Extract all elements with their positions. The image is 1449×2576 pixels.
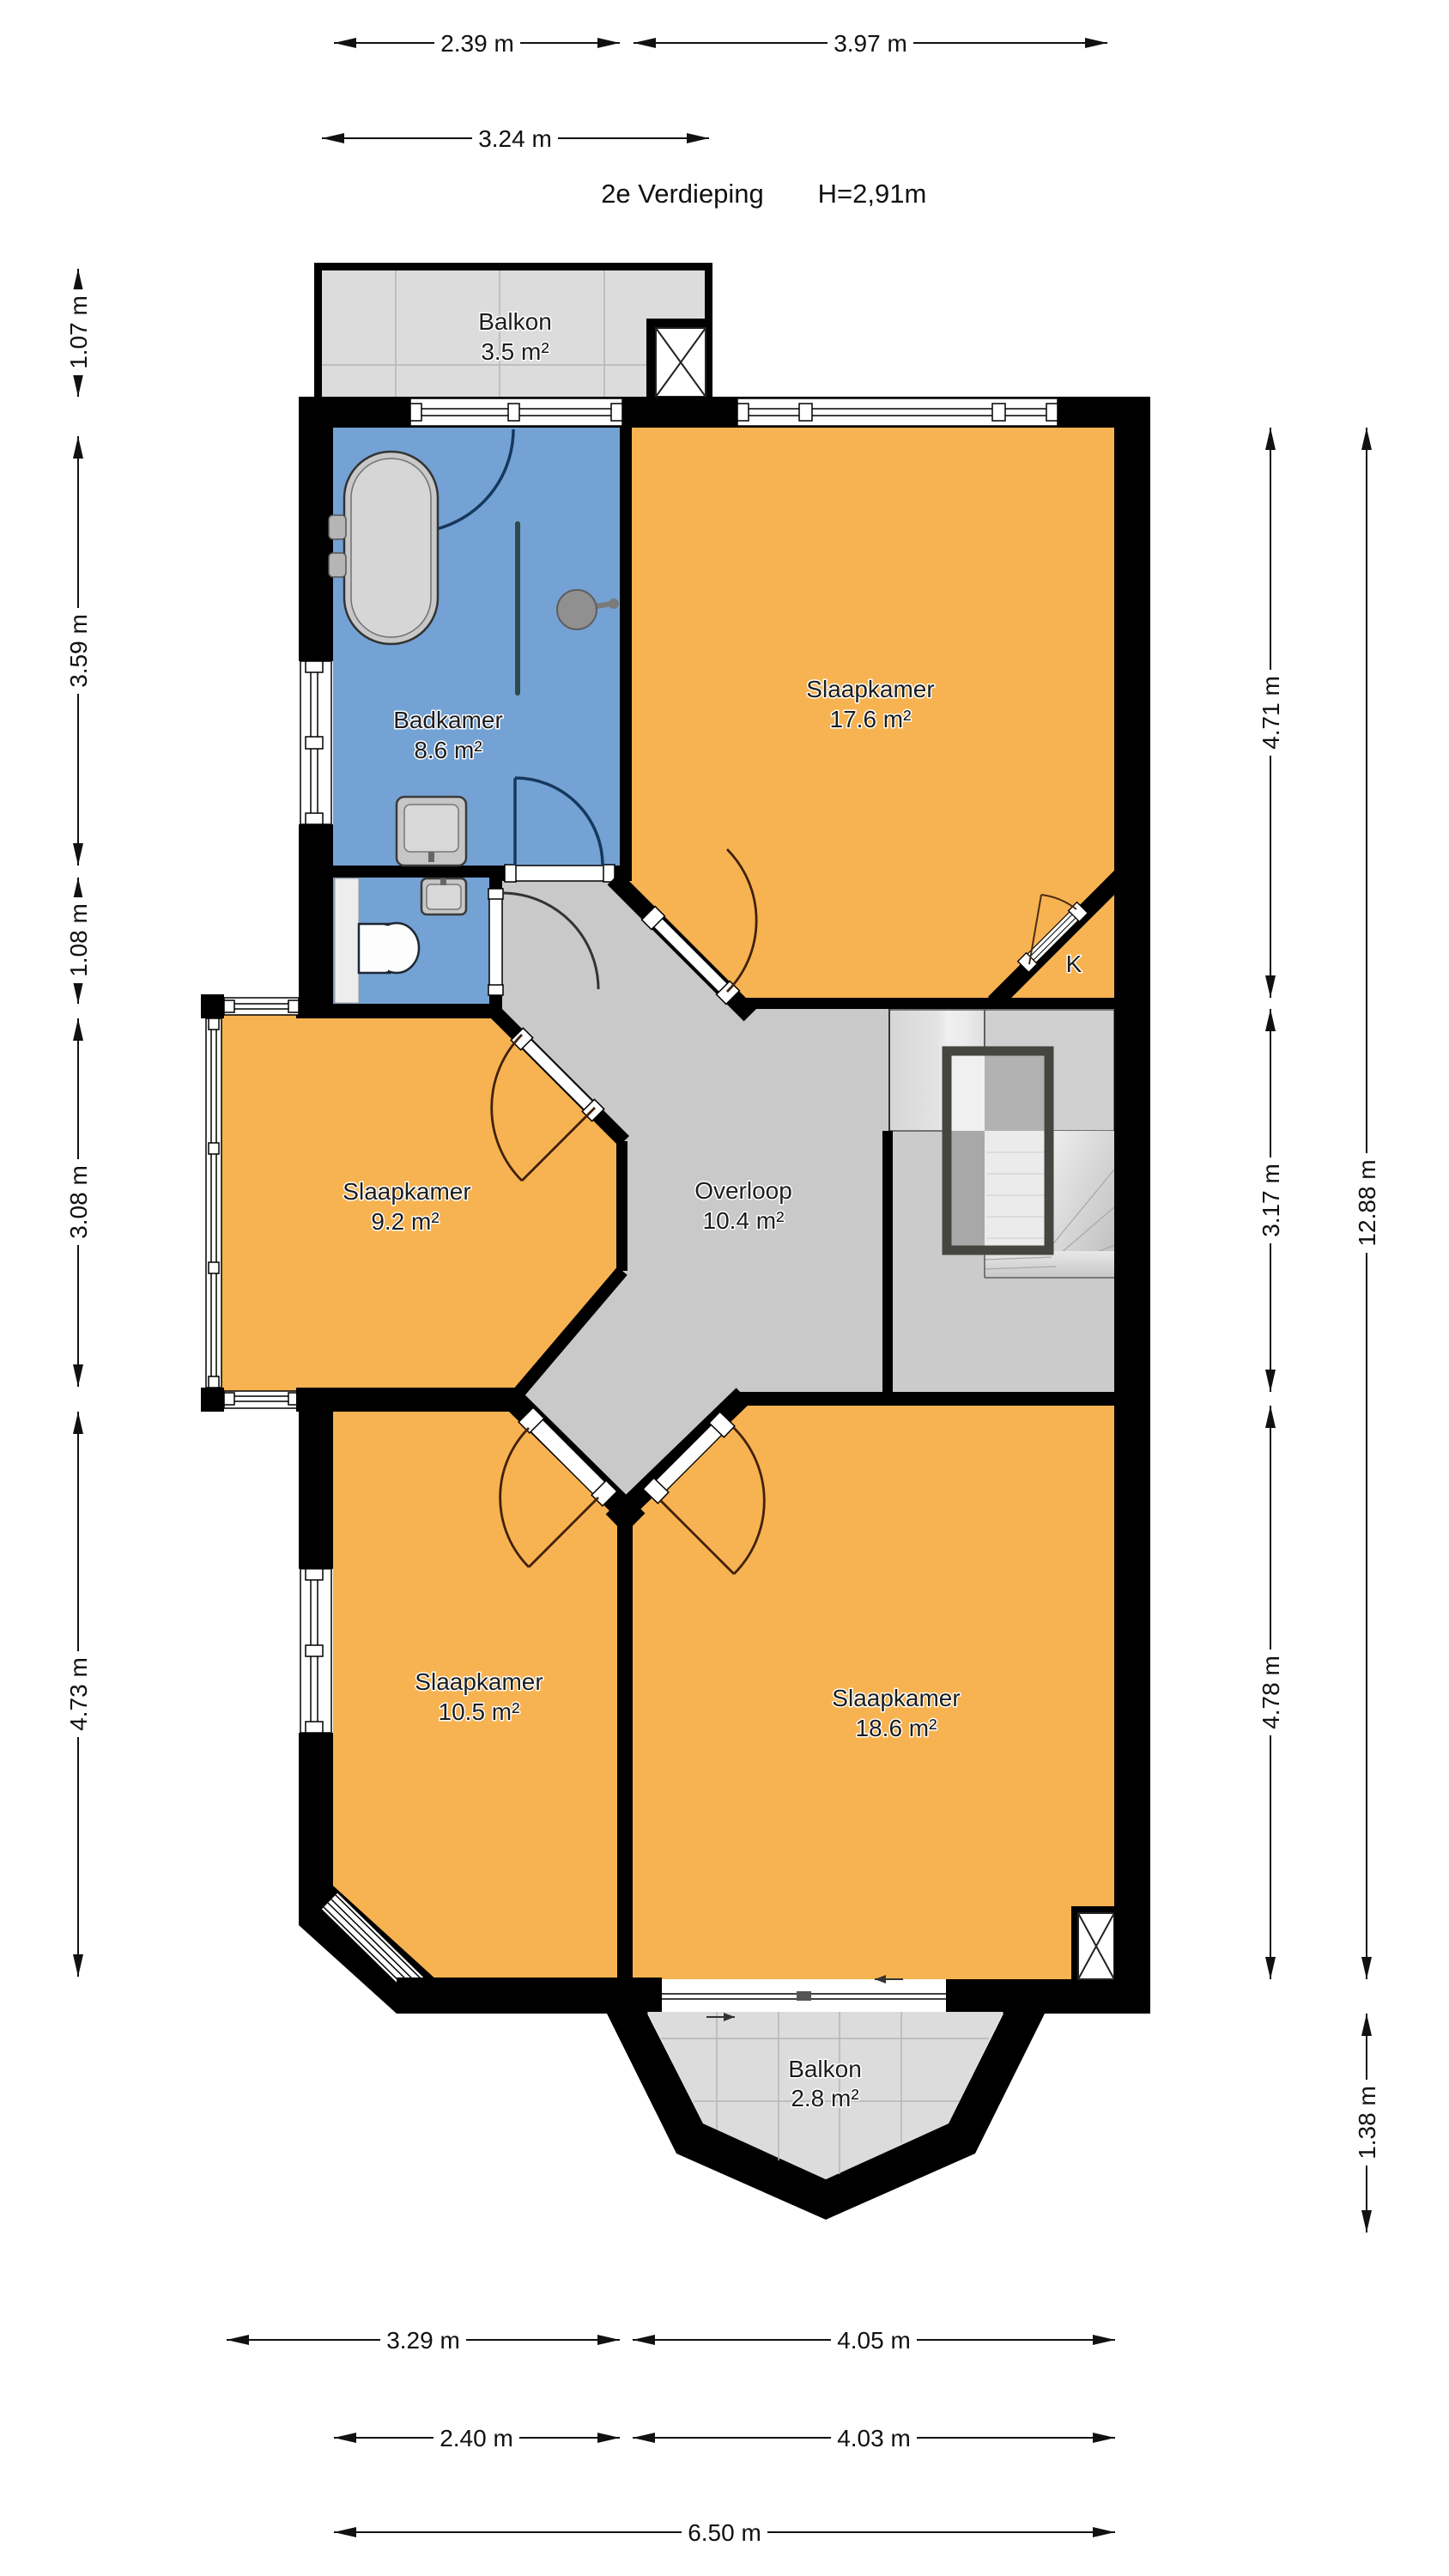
svg-text:3.29 m: 3.29 m xyxy=(386,2327,460,2354)
svg-text:Balkon: Balkon xyxy=(478,308,552,335)
svg-text:Slaapkamer: Slaapkamer xyxy=(343,1178,470,1205)
svg-text:2.40 m: 2.40 m xyxy=(440,2425,513,2451)
svg-text:18.6 m²: 18.6 m² xyxy=(856,1715,937,1741)
svg-text:3.59 m: 3.59 m xyxy=(65,614,92,688)
svg-text:9.2 m²: 9.2 m² xyxy=(371,1208,439,1235)
svg-text:3.97 m: 3.97 m xyxy=(834,30,907,57)
svg-text:4.78 m: 4.78 m xyxy=(1258,1656,1284,1729)
svg-text:H=2,91m: H=2,91m xyxy=(818,179,927,209)
svg-text:1.07 m: 1.07 m xyxy=(65,295,92,369)
svg-text:8.6 m²: 8.6 m² xyxy=(414,737,482,763)
svg-text:1.38 m: 1.38 m xyxy=(1354,2086,1380,2160)
svg-text:4.73 m: 4.73 m xyxy=(65,1657,92,1731)
svg-text:12.88 m: 12.88 m xyxy=(1354,1159,1380,1246)
svg-text:1.08 m: 1.08 m xyxy=(65,903,92,977)
svg-text:Overloop: Overloop xyxy=(694,1177,792,1204)
svg-text:17.6 m²: 17.6 m² xyxy=(830,706,912,732)
svg-text:2.8 m²: 2.8 m² xyxy=(791,2085,858,2111)
svg-text:Slaapkamer: Slaapkamer xyxy=(415,1668,543,1695)
svg-text:K: K xyxy=(1066,951,1082,977)
svg-text:6.50 m: 6.50 m xyxy=(688,2519,761,2546)
svg-text:2.39 m: 2.39 m xyxy=(440,30,514,57)
svg-text:3.5 m²: 3.5 m² xyxy=(481,338,549,365)
svg-text:3.08 m: 3.08 m xyxy=(65,1165,92,1239)
svg-text:Slaapkamer: Slaapkamer xyxy=(832,1685,960,1711)
svg-text:10.5 m²: 10.5 m² xyxy=(439,1698,520,1725)
svg-text:4.05 m: 4.05 m xyxy=(837,2327,911,2354)
svg-text:4.03 m: 4.03 m xyxy=(837,2425,911,2451)
svg-text:3.17 m: 3.17 m xyxy=(1258,1163,1284,1237)
svg-text:4.71 m: 4.71 m xyxy=(1258,676,1284,750)
svg-text:Balkon: Balkon xyxy=(788,2056,862,2082)
svg-text:Slaapkamer: Slaapkamer xyxy=(806,676,934,702)
svg-text:10.4 m²: 10.4 m² xyxy=(703,1207,785,1234)
svg-text:Badkamer: Badkamer xyxy=(393,707,503,733)
svg-text:2e Verdieping: 2e Verdieping xyxy=(601,179,764,209)
svg-text:3.24 m: 3.24 m xyxy=(478,125,552,152)
